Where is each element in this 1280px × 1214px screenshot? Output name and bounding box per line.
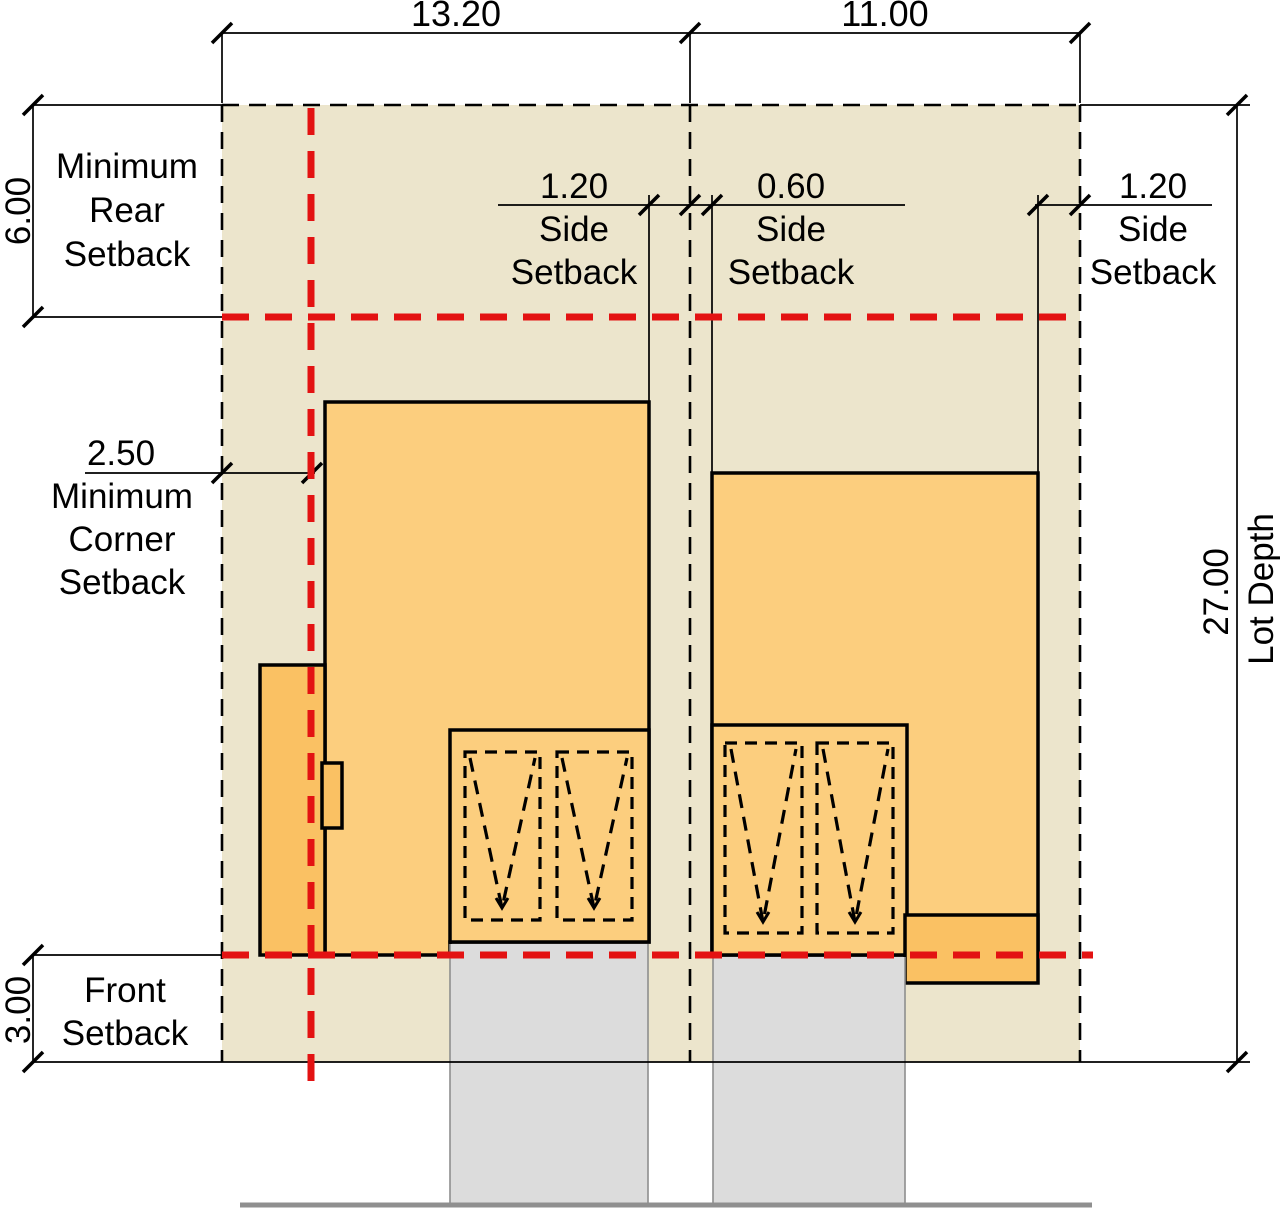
corner-setback-label-line1: Minimum	[51, 477, 193, 516]
right-building-porch	[905, 915, 1038, 983]
left-building-garage	[450, 730, 649, 942]
left-driveway	[450, 944, 648, 1204]
rear-setback-label-line1: Minimum	[56, 147, 198, 186]
right-side-setback-value: 1.20	[1119, 167, 1187, 206]
right-side-setback-label-line2: Setback	[1090, 253, 1217, 292]
left-side-setback-label-line1: Side	[539, 210, 609, 249]
left-side-setback-value: 1.20	[540, 167, 608, 206]
site-plan-svg: 13.20 11.00 Minimum Rear Setback 6.00 2.…	[0, 0, 1280, 1214]
front-setback-label-line2: Setback	[62, 1014, 189, 1053]
right-lot-width-value: 11.00	[841, 0, 928, 34]
right-driveway	[713, 957, 905, 1204]
middle-side-setback-value: 0.60	[757, 167, 825, 206]
lot-depth-label: Lot Depth	[1242, 513, 1280, 665]
rear-setback-label-line2: Rear	[89, 191, 165, 230]
left-building-side-wing	[260, 665, 325, 955]
left-side-setback-label-line2: Setback	[511, 253, 638, 292]
rear-setback-label-line3: Setback	[64, 235, 191, 274]
left-building-step	[322, 763, 342, 828]
left-lot-width-value: 13.20	[411, 0, 501, 34]
right-side-setback-label-line1: Side	[1118, 210, 1188, 249]
right-building-garage	[712, 725, 907, 955]
setback-diagram: 13.20 11.00 Minimum Rear Setback 6.00 2.…	[0, 0, 1280, 1214]
lot-depth-value: 27.00	[1197, 548, 1236, 636]
corner-setback-label-line3: Setback	[59, 563, 186, 602]
front-setback-label-line1: Front	[84, 971, 166, 1010]
front-setback-value: 3.00	[0, 976, 38, 1044]
middle-side-setback-label-line1: Side	[756, 210, 826, 249]
rear-setback-value: 6.00	[0, 177, 38, 245]
corner-setback-value: 2.50	[87, 434, 155, 473]
corner-setback-label-line2: Corner	[69, 520, 176, 559]
middle-side-setback-label-line2: Setback	[728, 253, 855, 292]
